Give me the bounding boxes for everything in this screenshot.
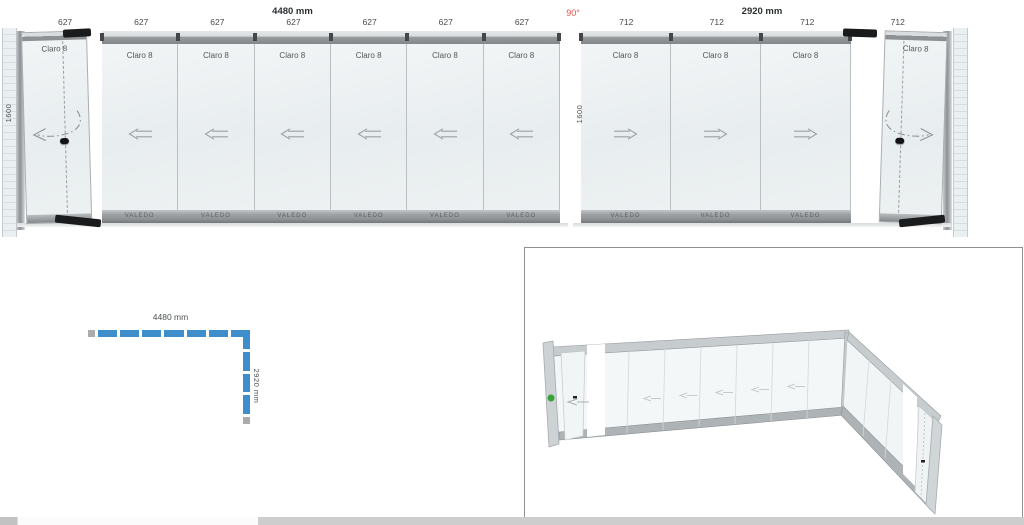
glass-type-label: Claro 8 — [102, 51, 177, 60]
plan-panel-segment — [209, 330, 228, 337]
panel-width-dimension: 627 — [408, 17, 484, 28]
glass-type-label: Claro 8 — [885, 43, 946, 54]
panel-width-dimension: 627 — [255, 17, 331, 28]
pivot-hardware-top — [843, 28, 877, 37]
dimension-row-right: 712 712 712 712 — [581, 17, 943, 28]
panel-width-dimension: 627 — [332, 17, 408, 28]
height-dimension-right: 1600 — [575, 94, 585, 134]
dimension-row-left: 627 627 627 627 627 627 627 — [27, 17, 560, 28]
door-opening-gap — [851, 44, 879, 210]
slide-right-arrow-icon — [613, 128, 639, 140]
plan-width-dimension: 4480 mm — [98, 312, 243, 322]
brand-label: VALEDO — [178, 210, 253, 223]
slide-left-arrow-icon — [356, 128, 382, 140]
slide-left-arrow-icon — [508, 128, 534, 140]
glass-type-label: Claro 8 — [581, 51, 670, 60]
horizontal-scrollbar[interactable] — [0, 517, 1024, 525]
swing-door-right: Claro 8 — [879, 30, 948, 224]
glass-panel: Claro 8 VALEDO — [255, 44, 331, 210]
panel-width-dimension: 627 — [103, 17, 179, 28]
slide-left-arrow-icon — [432, 128, 458, 140]
swing-direction-arrow-icon — [27, 107, 86, 149]
panel-width-dimension: 627 — [179, 17, 255, 28]
wall-section-right — [953, 28, 968, 237]
glass-panel: Claro 8 VALEDO — [581, 44, 671, 210]
swing-door-bay: Claro 8 — [25, 44, 94, 210]
glass-panel: Claro 8 VALEDO — [331, 44, 407, 210]
glass-type-label: Claro 8 — [484, 51, 559, 60]
panel-width-dimension: 627 — [484, 17, 560, 28]
door-opening-gap — [94, 44, 102, 210]
glass-type-label: Claro 8 — [178, 51, 253, 60]
brand-label: VALEDO — [331, 210, 406, 223]
glass-panel: Claro 8 VALEDO — [761, 44, 851, 210]
preview-3d-viewport[interactable] — [524, 247, 1023, 519]
glass-panel: Claro 8 VALEDO — [178, 44, 254, 210]
glass-row-left: Claro 8 Claro 8 VALEDO — [25, 44, 560, 210]
door-handle-icon — [59, 138, 68, 144]
slide-right-arrow-icon — [793, 128, 819, 140]
slide-right-arrow-icon — [703, 128, 729, 140]
plan-panel-segment — [164, 330, 183, 337]
pivot-hardware-top — [63, 28, 91, 37]
brand-label: VALEDO — [255, 210, 330, 223]
brand-label: VALEDO — [581, 210, 670, 223]
brand-label: VALEDO — [484, 210, 559, 223]
plan-panel-segment — [243, 352, 250, 371]
wall-anchor-square — [243, 417, 250, 424]
brand-label: VALEDO — [761, 210, 850, 223]
glass-panel: Claro 8 VALEDO — [484, 44, 560, 210]
floor-shadow — [573, 223, 951, 227]
height-dimension-left: 1600 — [4, 93, 14, 133]
plan-vertical-segments — [243, 330, 250, 414]
swing-door-bay: Claro 8 — [879, 44, 943, 210]
panel-width-dimension: 712 — [853, 17, 944, 28]
plan-panel-segment — [142, 330, 161, 337]
slide-left-arrow-icon — [203, 128, 229, 140]
panel-width-dimension: 627 — [27, 17, 103, 28]
plan-panel-segment — [187, 330, 206, 337]
panel-assembly-left: Claro 8 Claro 8 VALEDO — [25, 31, 560, 230]
brand-label: VALEDO — [407, 210, 482, 223]
elevation-view-left: 4480 mm 627 627 627 627 627 627 627 1600 — [0, 0, 562, 242]
plan-horizontal-segments — [98, 330, 250, 337]
elevation-view-right: 2920 mm 712 712 712 712 Claro 8 — [581, 0, 981, 242]
panel-assembly-right: Claro 8 VALEDO Claro 8 VALEDO — [581, 31, 943, 230]
glass-panel: Claro 8 VALEDO — [102, 44, 178, 210]
slide-left-arrow-icon — [279, 128, 305, 140]
elevation-right-title: 2920 mm — [581, 6, 943, 17]
plan-panel-segment — [243, 330, 250, 349]
swing-direction-arrow-icon — [880, 107, 939, 149]
scroll-left-button[interactable] — [0, 517, 18, 525]
glass-type-label: Claro 8 — [407, 51, 482, 60]
brand-label: VALEDO — [102, 210, 177, 223]
wall-anchor-square — [88, 330, 95, 337]
plan-panel-segment — [243, 374, 250, 393]
plan-panel-segment — [243, 395, 250, 414]
glass-row-right: Claro 8 VALEDO Claro 8 VALEDO — [581, 44, 943, 210]
panel-width-dimension: 712 — [581, 17, 672, 28]
glass-type-label: Claro 8 — [331, 51, 406, 60]
swing-door-left: Claro 8 — [21, 30, 92, 224]
panel-width-dimension: 712 — [762, 17, 853, 28]
elevation-left-title: 4480 mm — [25, 6, 560, 17]
top-rail — [581, 31, 851, 44]
panel-width-dimension: 712 — [672, 17, 763, 28]
glass-type-label: Claro 8 — [671, 51, 760, 60]
door-handle-icon — [896, 138, 905, 144]
brand-label: VALEDO — [671, 210, 760, 223]
plan-line-horizontal — [88, 330, 250, 337]
glass-type-label: Claro 8 — [22, 43, 86, 54]
glass-type-label: Claro 8 — [761, 51, 850, 60]
glass-panel: Claro 8 VALEDO — [407, 44, 483, 210]
plan-panel-segment — [98, 330, 117, 337]
scrollbar-thumb[interactable] — [18, 517, 258, 525]
plan-depth-dimension: 2920 mm — [251, 356, 261, 416]
door-top-rail — [885, 31, 946, 41]
preview-3d-drawing — [525, 248, 1020, 516]
glass-panel: Claro 8 VALEDO — [671, 44, 761, 210]
plan-line-vertical — [243, 330, 250, 424]
slide-left-arrow-icon — [127, 128, 153, 140]
plan-panel-segment — [120, 330, 139, 337]
glass-type-label: Claro 8 — [255, 51, 330, 60]
configurator-canvas: 4480 mm 627 627 627 627 627 627 627 1600 — [0, 0, 1024, 525]
